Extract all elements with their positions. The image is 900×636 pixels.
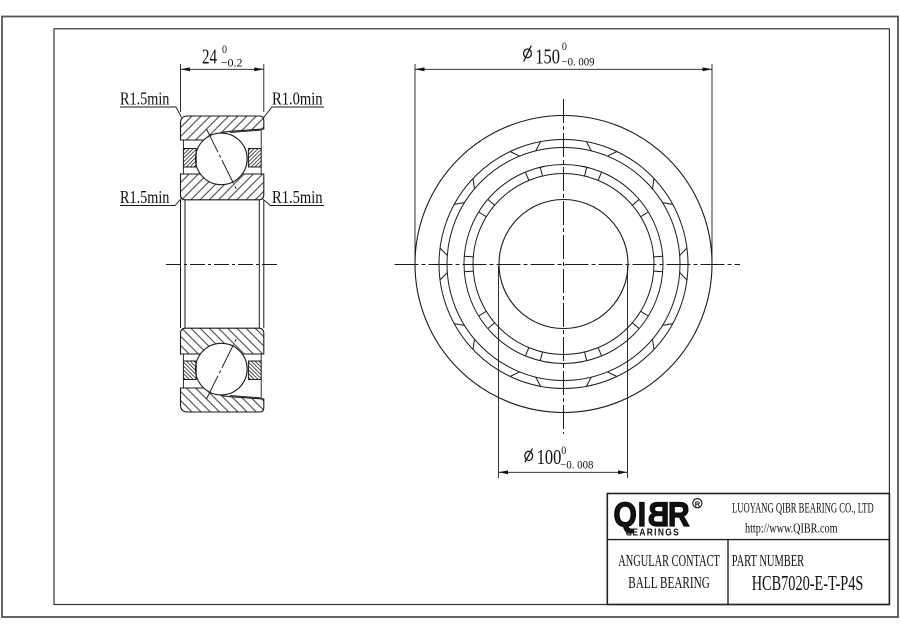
svg-text:150: 150 <box>535 46 560 70</box>
svg-text:−0. 008: −0. 008 <box>560 459 593 472</box>
svg-text:R: R <box>695 500 701 509</box>
svg-text:ANGULAR CONTACT: ANGULAR CONTACT <box>618 552 720 571</box>
svg-text:R1.0min: R1.0min <box>272 88 323 109</box>
svg-text:R1.5min: R1.5min <box>120 187 169 207</box>
svg-text:24: 24 <box>202 45 217 69</box>
svg-text:LUOYANG QIBR BEARING CO., LTD: LUOYANG QIBR BEARING CO., LTD <box>732 499 874 516</box>
svg-text:http://www.QIBR.com: http://www.QIBR.com <box>745 520 838 536</box>
svg-text:HCB7020-E-T-P4S: HCB7020-E-T-P4S <box>752 571 864 594</box>
svg-text:BALL BEARING: BALL BEARING <box>628 574 710 593</box>
svg-text:EARINGS: EARINGS <box>632 527 680 539</box>
svg-text:0: 0 <box>222 43 227 56</box>
svg-text:100: 100 <box>537 446 562 470</box>
svg-text:B: B <box>626 527 632 539</box>
svg-text:0: 0 <box>562 40 567 53</box>
svg-text:0: 0 <box>561 445 566 458</box>
svg-text:−0. 009: −0. 009 <box>562 56 595 69</box>
svg-text:R1.5min: R1.5min <box>120 89 169 109</box>
svg-text:−0.2: −0.2 <box>221 56 243 70</box>
svg-text:PART NUMBER: PART NUMBER <box>732 552 805 571</box>
svg-text:R1.5min: R1.5min <box>272 187 323 208</box>
